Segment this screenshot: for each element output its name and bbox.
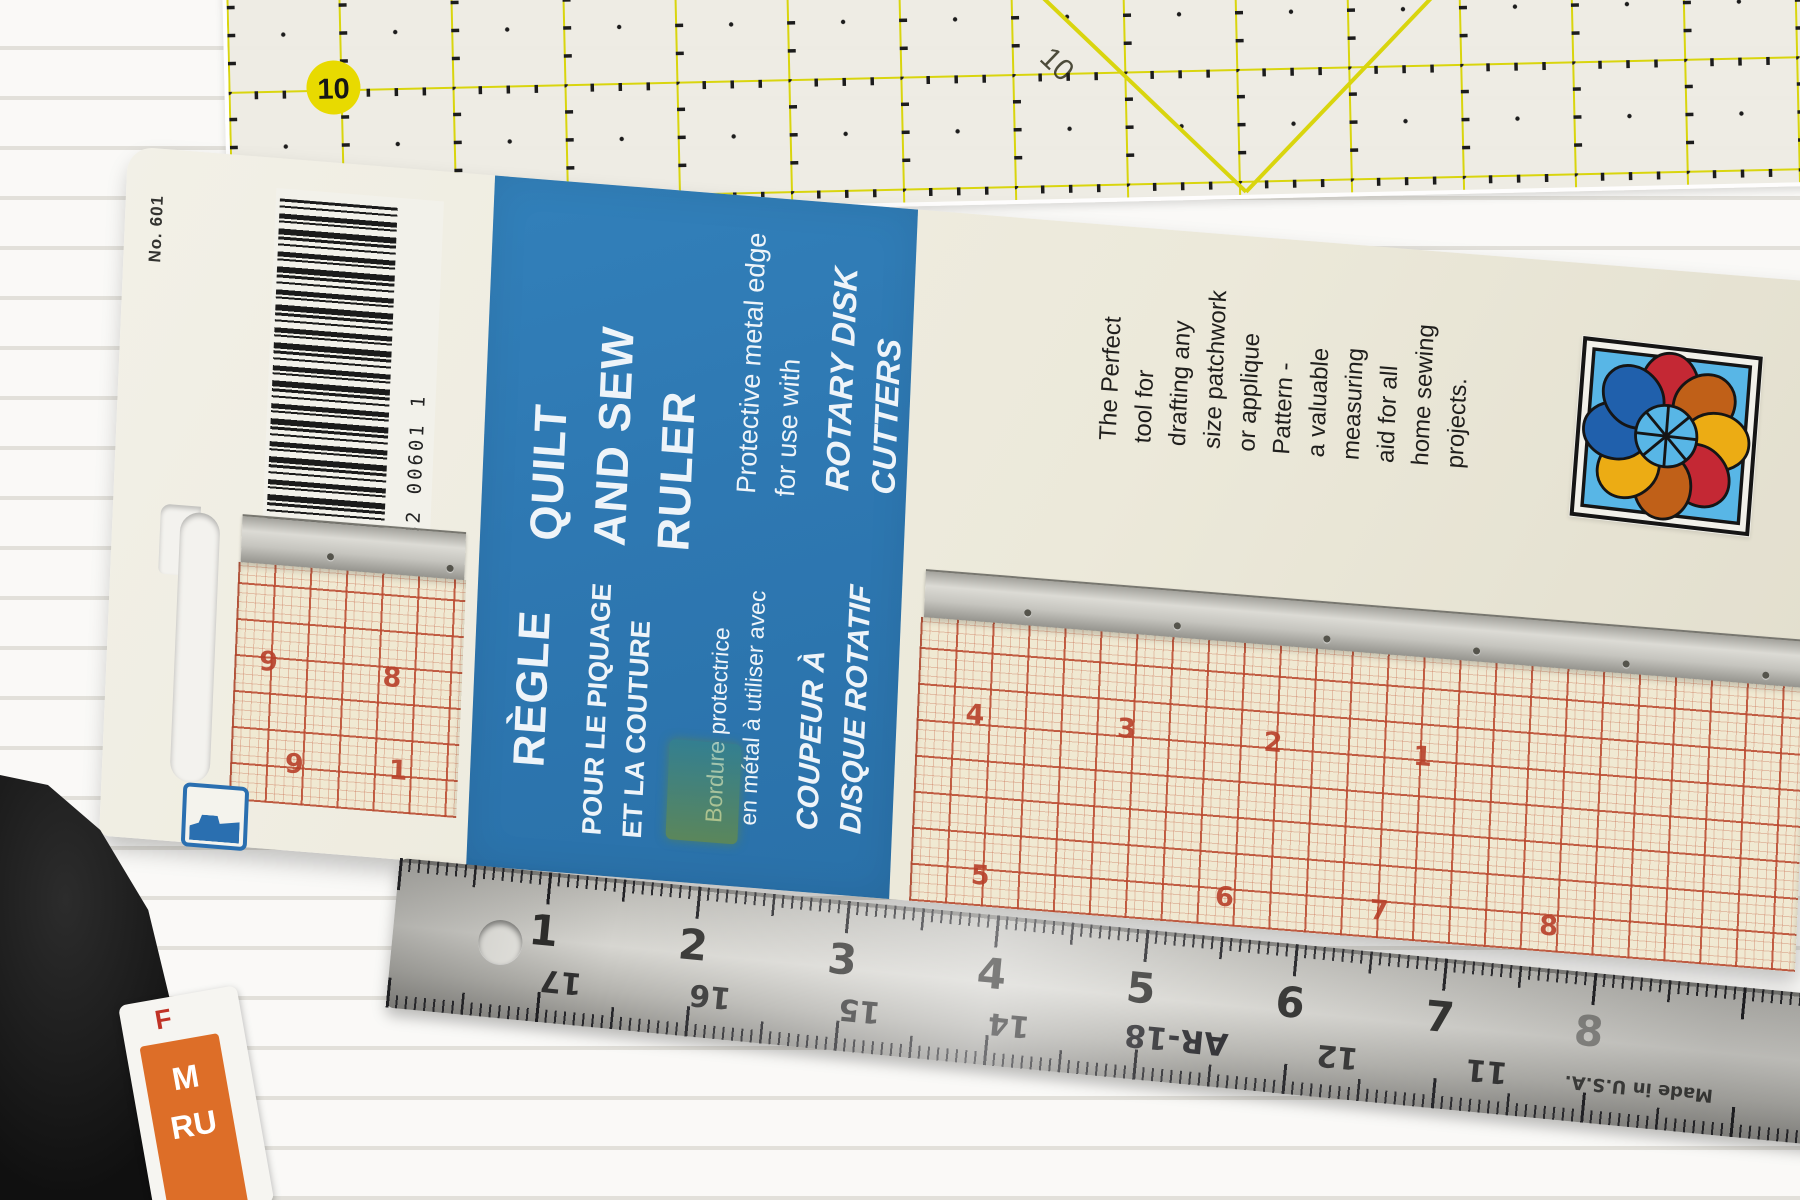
blue-panel: QUILT AND SEW RULER Protective metal edg… (466, 176, 918, 899)
ruler-number-inverted: 12 (1315, 1037, 1360, 1076)
grid-number: 9 (284, 748, 304, 780)
ruler-number-inverted: 16 (688, 976, 733, 1015)
rivet (1762, 671, 1769, 679)
green-highlight-mark (665, 739, 741, 845)
description-en-wrap: The Perfect tool for drafting any size p… (1092, 224, 1483, 470)
cutter-fr-wrap: COUPEUR À DISQUE ROTATIF (786, 561, 884, 836)
title-fr-lines: POUR LE PIQUAGE ET LA COUTURE (572, 552, 665, 840)
grid-number: 8 (1539, 910, 1559, 942)
hang-slot (149, 502, 223, 793)
ruler-number: 8 (1572, 1005, 1606, 1057)
title-en-wrap: QUILT AND SEW RULER (514, 188, 720, 553)
ruler-minor-ticks-bottom (386, 994, 1800, 1151)
flower-logo-graphic (1569, 335, 1764, 537)
grid-number: 1 (1413, 741, 1433, 773)
ruler-number: 2 (676, 919, 710, 971)
ruler-number-inverted: 14 (986, 1005, 1031, 1044)
ruler-number: 5 (1124, 962, 1158, 1014)
yellow-ruler-circle-label: 10 (317, 73, 350, 106)
grid-number: 3 (1116, 713, 1136, 745)
product-number-wrap: No. 601 (145, 192, 168, 264)
ruler-number: 7 (1423, 991, 1457, 1043)
grid-number: 1 (388, 754, 408, 786)
photo-scene: 10 10 No. 601 0 62532 00601 1 QUILT AND … (0, 0, 1800, 1200)
ruler-number: 1 (527, 905, 561, 957)
ruler-half-inch-ticks-bottom (386, 985, 1800, 1151)
ruler-model-label: AR-18 (1123, 1016, 1230, 1062)
rivet (327, 553, 334, 561)
ruler-number: 3 (825, 934, 859, 986)
grid-ruler-left-window: 9 8 9 1 (229, 562, 466, 818)
title-fr-wrap: RÈGLE (502, 546, 564, 832)
rivet (1473, 647, 1480, 655)
ruler-number-inverted: 17 (538, 962, 583, 1001)
product-number: No. 601 (145, 192, 168, 264)
ruler-number: 6 (1273, 977, 1307, 1029)
corner-package-letter: F (153, 1003, 175, 1036)
grid-number: 9 (258, 646, 278, 678)
title-fr: RÈGLE (502, 546, 564, 832)
corner-package-letters: M RU (142, 1047, 237, 1155)
product-package: No. 601 0 62532 00601 1 QUILT AND SEW RU… (99, 146, 1800, 972)
ruler-made-in-label: Made in U.S.A. (1563, 1071, 1713, 1106)
ruler-number: 4 (975, 948, 1009, 1000)
title-en: QUILT AND SEW RULER (514, 188, 720, 553)
flower-logo (1569, 335, 1764, 537)
rivet (446, 565, 453, 573)
ruler-inch-ticks-bottom (386, 977, 1800, 1151)
cutter-en: ROTARY DISK CUTTERS (814, 217, 918, 496)
brand-logo (181, 782, 250, 851)
feature-en-wrap: Protective metal edge for use with (727, 207, 817, 498)
description-en: The Perfect tool for drafting any size p… (1092, 224, 1483, 470)
rivet (1024, 609, 1031, 617)
grid-number: 7 (1369, 895, 1389, 927)
ruler-number-inverted: 15 (837, 991, 882, 1030)
grid-number: 8 (382, 662, 402, 694)
rivet (1622, 660, 1629, 668)
rivet (1174, 622, 1181, 630)
rivet (1323, 635, 1330, 643)
ruler-number-inverted: 11 (1464, 1051, 1509, 1090)
grid-number: 6 (1214, 881, 1234, 913)
ruler-hang-hole (476, 918, 524, 966)
brand-logo-emblem (189, 814, 240, 844)
grid-number: 5 (970, 859, 990, 891)
cutter-fr: COUPEUR À DISQUE ROTATIF (786, 561, 884, 836)
grid-number: 2 (1263, 727, 1283, 759)
corner-package-label: M RU (139, 1033, 248, 1200)
title-fr-lines-wrap: POUR LE PIQUAGE ET LA COUTURE (572, 552, 665, 840)
grid-number: 4 (965, 699, 985, 731)
cutter-en-wrap: ROTARY DISK CUTTERS (814, 217, 918, 496)
feature-en: Protective metal edge for use with (727, 207, 817, 498)
